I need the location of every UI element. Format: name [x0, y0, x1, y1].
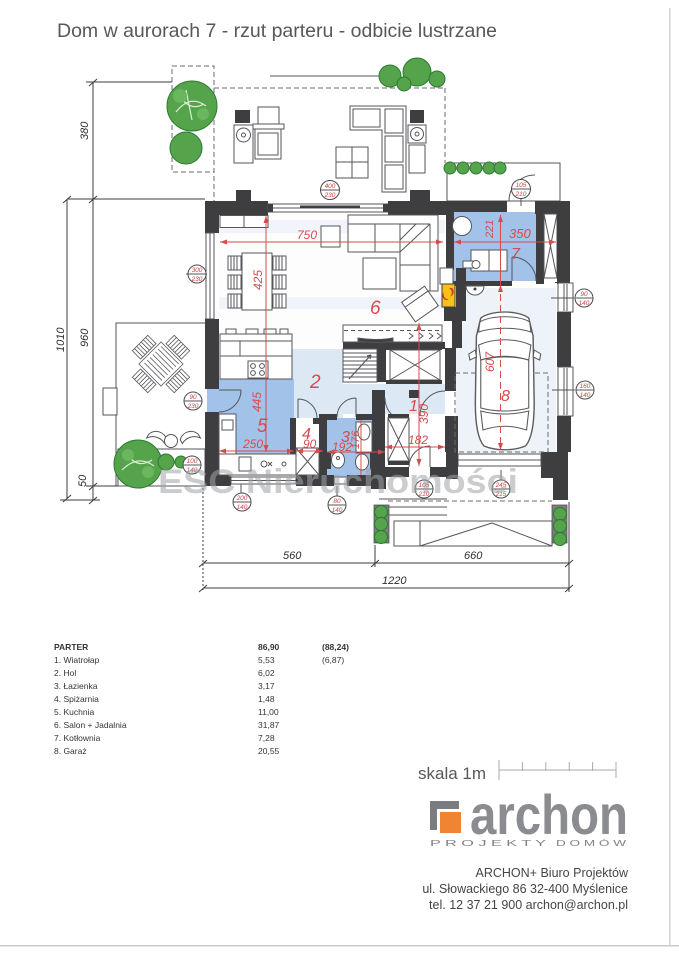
- svg-text:ARCHON+ Biuro Projektów: ARCHON+ Biuro Projektów: [476, 866, 629, 880]
- svg-text:D O M Ó W: D O M Ó W: [556, 839, 627, 848]
- svg-text:1: 1: [409, 398, 418, 415]
- svg-text:230: 230: [191, 276, 203, 283]
- svg-text:20,55: 20,55: [258, 746, 280, 756]
- svg-text:2. Hol: 2. Hol: [54, 668, 76, 678]
- svg-text:6: 6: [370, 298, 381, 319]
- svg-text:1220: 1220: [382, 575, 407, 587]
- svg-text:5,53: 5,53: [258, 655, 275, 665]
- svg-text:140: 140: [580, 392, 591, 399]
- svg-text:140: 140: [237, 504, 248, 511]
- svg-text:31,87: 31,87: [258, 720, 280, 730]
- svg-text:5: 5: [257, 416, 268, 437]
- svg-text:250: 250: [242, 437, 263, 451]
- svg-text:105: 105: [516, 182, 527, 189]
- svg-text:160: 160: [580, 383, 591, 390]
- svg-text:660: 660: [464, 550, 483, 562]
- svg-text:176: 176: [350, 430, 362, 449]
- svg-text:50: 50: [77, 474, 89, 487]
- svg-text:(88,24): (88,24): [322, 642, 349, 652]
- svg-text:3. Łazienka: 3. Łazienka: [54, 681, 98, 691]
- svg-text:skala 1m: skala 1m: [418, 764, 486, 783]
- svg-text:4: 4: [302, 426, 311, 443]
- svg-text:221: 221: [484, 220, 496, 239]
- svg-text:2: 2: [309, 372, 321, 393]
- svg-text:750: 750: [297, 228, 317, 242]
- svg-text:210: 210: [515, 191, 527, 198]
- svg-text:140: 140: [332, 507, 343, 514]
- svg-text:8: 8: [501, 388, 510, 405]
- svg-text:archon: archon: [470, 783, 628, 846]
- svg-text:350: 350: [509, 226, 531, 241]
- svg-text:182: 182: [408, 433, 428, 447]
- svg-text:607: 607: [483, 351, 497, 372]
- svg-text:(6,87): (6,87): [322, 655, 344, 665]
- svg-text:11,00: 11,00: [258, 707, 279, 717]
- svg-text:560: 560: [283, 550, 302, 562]
- svg-text:90: 90: [189, 394, 197, 401]
- svg-text:ul. Słowackiego 86 32-400 Myśl: ul. Słowackiego 86 32-400 Myślenice: [422, 882, 628, 896]
- svg-text:90: 90: [580, 291, 588, 298]
- svg-text:5. Kuchnia: 5. Kuchnia: [54, 707, 94, 717]
- svg-text:380: 380: [79, 121, 91, 140]
- svg-text:ESC Nieruchomości: ESC Nieruchomości: [158, 463, 518, 501]
- svg-text:960: 960: [79, 328, 91, 347]
- svg-text:425: 425: [251, 270, 265, 290]
- svg-text:3,17: 3,17: [258, 681, 275, 691]
- svg-text:300: 300: [192, 267, 203, 274]
- svg-text:Dom w aurorach 7 - rzut parter: Dom w aurorach 7 - rzut parteru - odbici…: [57, 20, 497, 42]
- svg-text:6. Salon + Jadalnia: 6. Salon + Jadalnia: [54, 720, 127, 730]
- svg-text:tel. 12 37 21 900 archon@archo: tel. 12 37 21 900 archon@archon.pl: [429, 898, 628, 912]
- svg-text:4. Spiżarnia: 4. Spiżarnia: [54, 694, 99, 704]
- svg-text:P R O J E K T Y: P R O J E K T Y: [430, 839, 547, 848]
- svg-text:PARTER: PARTER: [54, 642, 88, 652]
- svg-text:7,28: 7,28: [258, 733, 275, 743]
- svg-text:390: 390: [417, 404, 431, 424]
- svg-text:7: 7: [511, 246, 521, 263]
- svg-text:1. Wiatrołap: 1. Wiatrołap: [54, 655, 100, 665]
- svg-text:8. Garaż: 8. Garaż: [54, 746, 87, 756]
- svg-text:400: 400: [325, 183, 336, 190]
- svg-text:230: 230: [324, 192, 336, 199]
- svg-text:1010: 1010: [55, 327, 67, 352]
- svg-text:1,48: 1,48: [258, 694, 275, 704]
- svg-text:7. Kotłownia: 7. Kotłownia: [54, 733, 101, 743]
- svg-text:3: 3: [341, 429, 350, 446]
- svg-text:445: 445: [250, 392, 264, 412]
- svg-text:6,02: 6,02: [258, 668, 275, 678]
- svg-text:86,90: 86,90: [258, 642, 280, 652]
- svg-text:140: 140: [579, 300, 590, 307]
- svg-text:230: 230: [187, 403, 199, 410]
